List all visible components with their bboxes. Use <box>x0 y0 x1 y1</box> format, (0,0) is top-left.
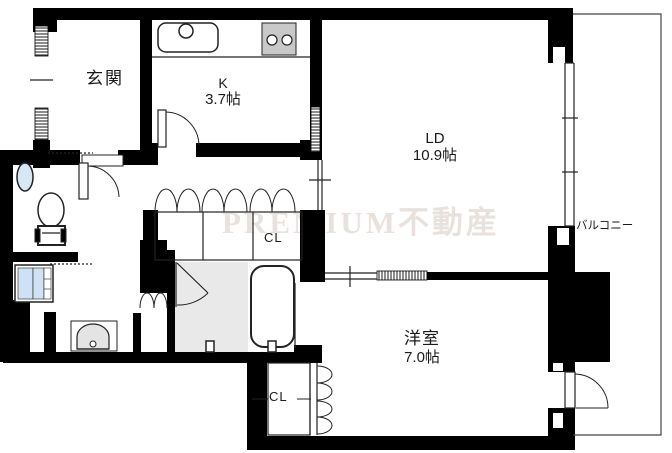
sliding-partition-hatch <box>377 271 427 280</box>
bathtub-faucet <box>268 341 276 352</box>
entrance-door-hatch-bottom <box>35 108 48 140</box>
ld-entry-opening <box>309 160 331 210</box>
toilet-door <box>79 163 119 199</box>
hall-closet-bifold-doors <box>155 189 295 212</box>
washroom-bifold-door <box>140 293 167 308</box>
living-dining-size: 10.9帖 <box>377 147 493 164</box>
ld-bedroom-opening <box>325 266 377 287</box>
living-dining-label: LD 10.9帖 <box>377 130 493 165</box>
balcony-label: バルコニー <box>576 220 633 233</box>
bedroom-balcony-door <box>565 372 608 408</box>
kitchen-door <box>158 110 199 147</box>
bedroom-size: 7.0帖 <box>364 349 480 366</box>
living-dining-name: LD <box>377 130 493 147</box>
gas-stove <box>262 23 296 55</box>
bedroom-name: 洋室 <box>364 329 480 349</box>
bedroom-closet-label: CL <box>269 390 288 405</box>
entrance-door-hatch-top <box>35 26 48 56</box>
bedroom-label: 洋室 7.0帖 <box>364 329 480 366</box>
washbasin <box>71 321 117 351</box>
hall-closet <box>155 189 302 260</box>
kitchen-label: K 3.7帖 <box>165 75 281 108</box>
entrance-label: 玄関 <box>66 69 144 89</box>
washing-machine-pan <box>15 265 53 302</box>
toilet <box>35 193 66 245</box>
toilet-hand-basin <box>17 163 33 191</box>
kitchen-wall-hatch <box>311 107 320 152</box>
ld-balcony-window <box>562 63 578 226</box>
kitchen-size: 3.7帖 <box>165 91 281 108</box>
bathroom-drain <box>206 341 214 352</box>
floor-plan-drawing <box>0 0 672 453</box>
kitchen-sink <box>158 23 218 52</box>
bedroom-closet-bifold-doors <box>317 366 332 434</box>
kitchen-name: K <box>165 75 281 91</box>
hall-closet-label: CL <box>264 231 283 246</box>
floor-plan: PREMIUM不動産 <box>0 0 672 453</box>
bathroom-floor <box>175 262 248 352</box>
